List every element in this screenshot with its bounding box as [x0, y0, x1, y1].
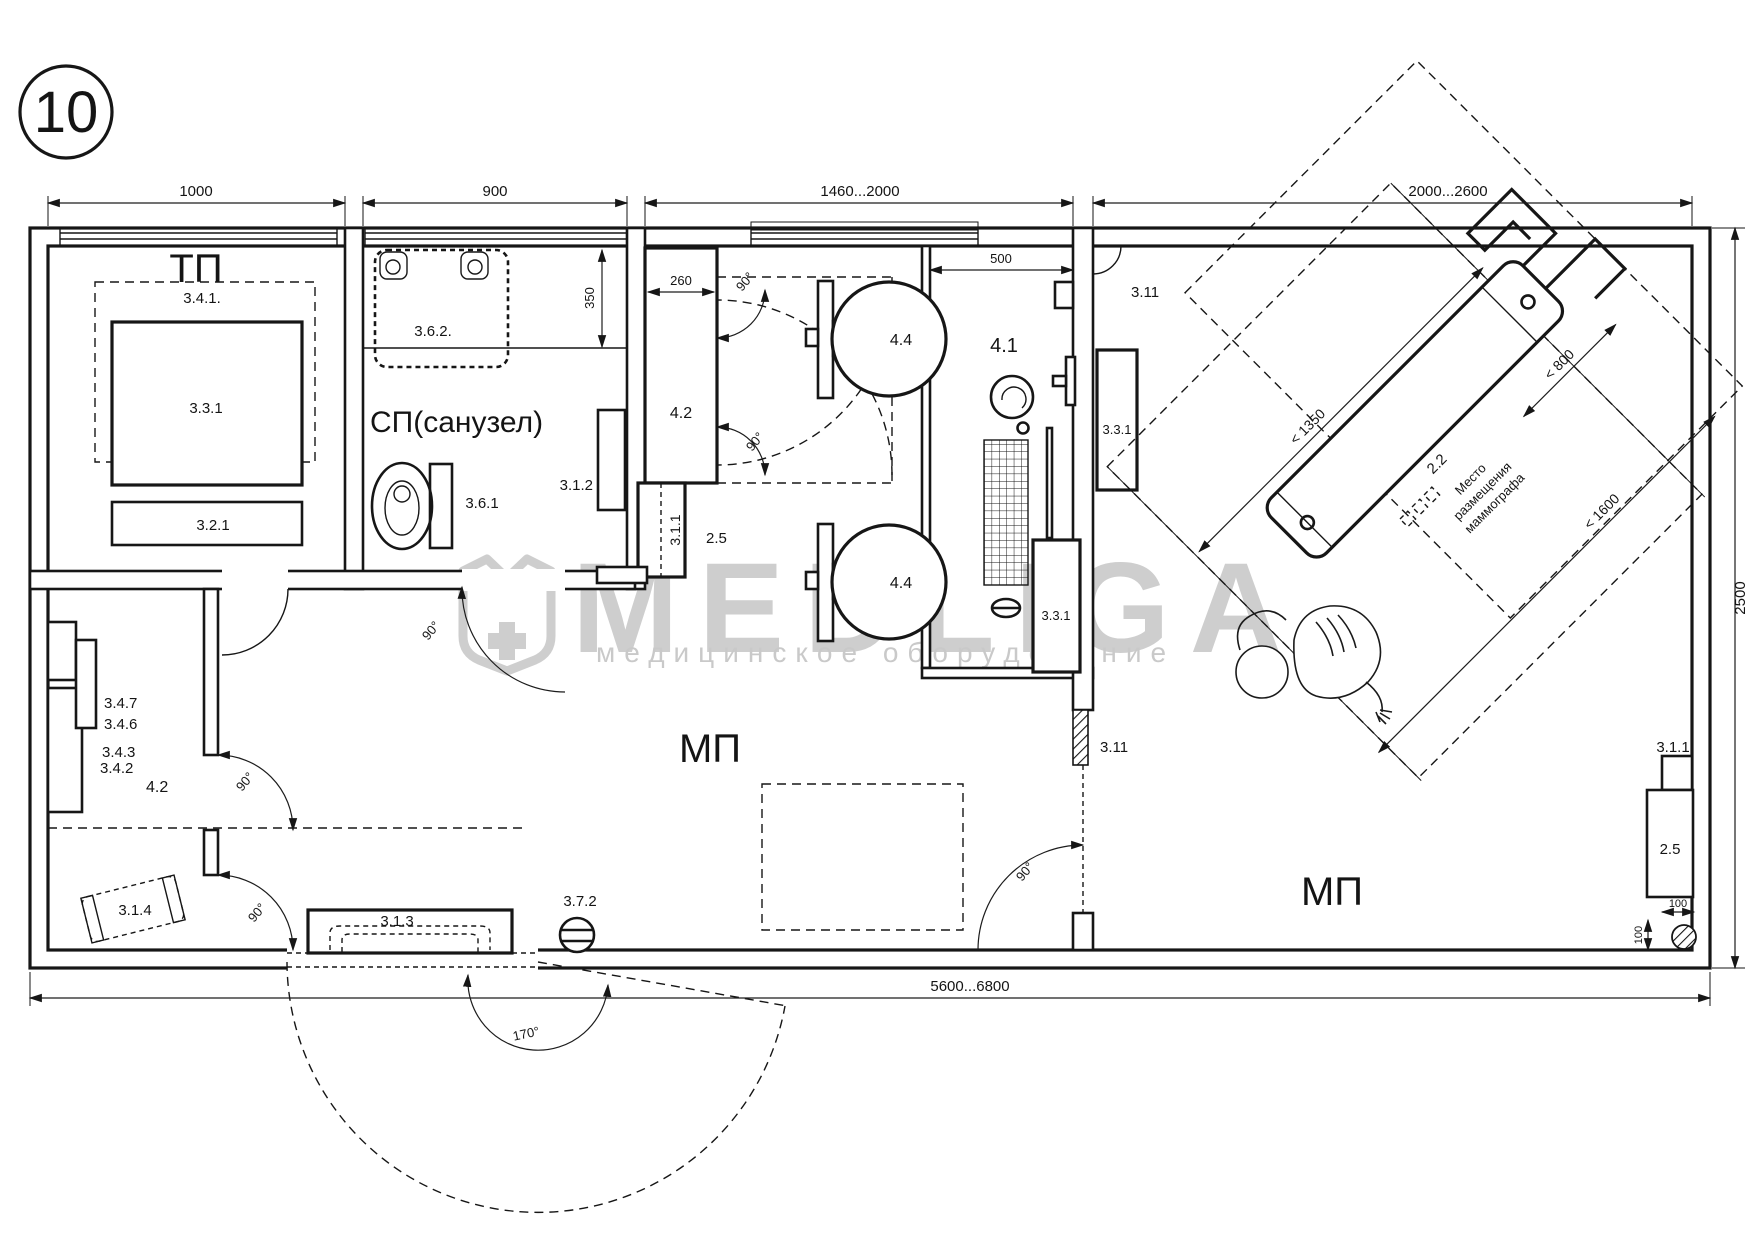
item-3-3-1-right: 3.3.1: [1103, 422, 1132, 437]
plan-number-badge: 10: [20, 66, 112, 158]
dim-mammo-1350: < 1350: [1286, 405, 1328, 447]
room-tp: ТП 3.4.1. 3.3.1 3.2.1: [95, 247, 315, 545]
item-4-4-b: 4.4: [890, 575, 912, 592]
tp-door-arc: [222, 589, 288, 655]
room-left-lower: 3.4.7 3.4.6 3.4.3 3.4.2 4.2 3.1.4: [48, 622, 526, 943]
angle-90-middle: 90°: [1013, 859, 1037, 884]
item-3-1-1-column: 3.1.1: [667, 514, 683, 545]
item-3-4-3: 3.4.3: [102, 744, 135, 761]
room-4-1-label: 4.1: [990, 335, 1018, 357]
dim-500: 500: [990, 251, 1012, 266]
floor-plan-drawing: MEDLIGA медицинское оборудование 10: [0, 0, 1755, 1240]
dim-1000: 1000: [179, 183, 212, 200]
angle-90-sp: 90°: [419, 618, 443, 643]
room-mp-right-label: МП: [1301, 870, 1363, 914]
dim-1460-2000: 1460...2000: [820, 183, 899, 200]
pipe-penetration: [1672, 925, 1696, 949]
item-3-7-2: 3.7.2: [563, 893, 596, 910]
angle-90-cab-mid: 90°: [743, 429, 767, 454]
right-wall-items: 3.1.1 2.5 100 100: [1633, 739, 1696, 950]
dim-5600-6800: 5600...6800: [930, 978, 1009, 995]
dim-2000-2600: 2000...2600: [1408, 183, 1487, 200]
middle-wall-door: [762, 765, 1083, 950]
item-3-11-vent: 3.11: [1100, 739, 1128, 756]
item-2-2: 2.2: [1424, 451, 1451, 478]
item-3-6-1: 3.6.1: [465, 495, 498, 512]
item-4-2-left: 4.2: [146, 779, 168, 796]
vent-column: [1073, 710, 1088, 765]
dim-2500: 2500: [1732, 581, 1749, 614]
angle-90-left-upper: 90°: [233, 769, 257, 794]
item-3-1-1-wall: 3.1.1: [1656, 739, 1689, 756]
item-4-4-a: 4.4: [890, 332, 912, 349]
item-3-2-1: 3.2.1: [196, 517, 229, 534]
radiator-arc: [1093, 246, 1121, 274]
dim-100-v: 100: [1633, 926, 1645, 944]
dim-100-h: 100: [1669, 898, 1687, 910]
device-4-4-lower: 4.4: [806, 524, 946, 641]
item-3-1-2: 3.1.2: [560, 477, 593, 494]
item-3-4-1: 3.4.1.: [183, 290, 221, 307]
angle-170: 170°: [511, 1023, 540, 1043]
item-2-5-column: 2.5: [706, 530, 727, 547]
entrance: 3.1.3 3.7.2: [287, 893, 787, 1212]
room-mp-left-label: МП: [679, 727, 741, 771]
angle-90-cab-top: 90°: [733, 269, 757, 294]
room-tp-label: ТП: [169, 247, 222, 291]
item-3-11-top: 3.11: [1131, 284, 1159, 301]
item-3-3-1-corridor: 3.3.1: [1042, 608, 1071, 623]
dim-350: 350: [582, 287, 597, 309]
item-3-6-2: 3.6.2.: [414, 323, 452, 340]
dim-900: 900: [482, 183, 507, 200]
item-3-4-7: 3.4.7: [104, 695, 137, 712]
plan-number: 10: [34, 80, 99, 145]
top-windows: [60, 222, 978, 246]
item-3-3-1-tp: 3.3.1: [189, 400, 222, 417]
floor-plan-page: MEDLIGA медицинское оборудование 10: [0, 0, 1755, 1240]
box-3-3-1-right: [1097, 350, 1137, 490]
item-3-4-2: 3.4.2: [100, 760, 133, 777]
item-3-1-3: 3.1.3: [380, 913, 413, 930]
dim-260: 260: [670, 273, 692, 288]
device-4-4-upper: 4.4: [806, 281, 946, 398]
item-3-4-6: 3.4.6: [104, 716, 137, 733]
angle-90-left-lower: 90°: [245, 900, 269, 925]
room-sp-label: СП(санузел): [370, 406, 543, 439]
item-2-5-wall: 2.5: [1660, 841, 1681, 858]
item-4-2-cabinet: 4.2: [670, 405, 692, 422]
item-3-1-4: 3.1.4: [118, 902, 151, 919]
